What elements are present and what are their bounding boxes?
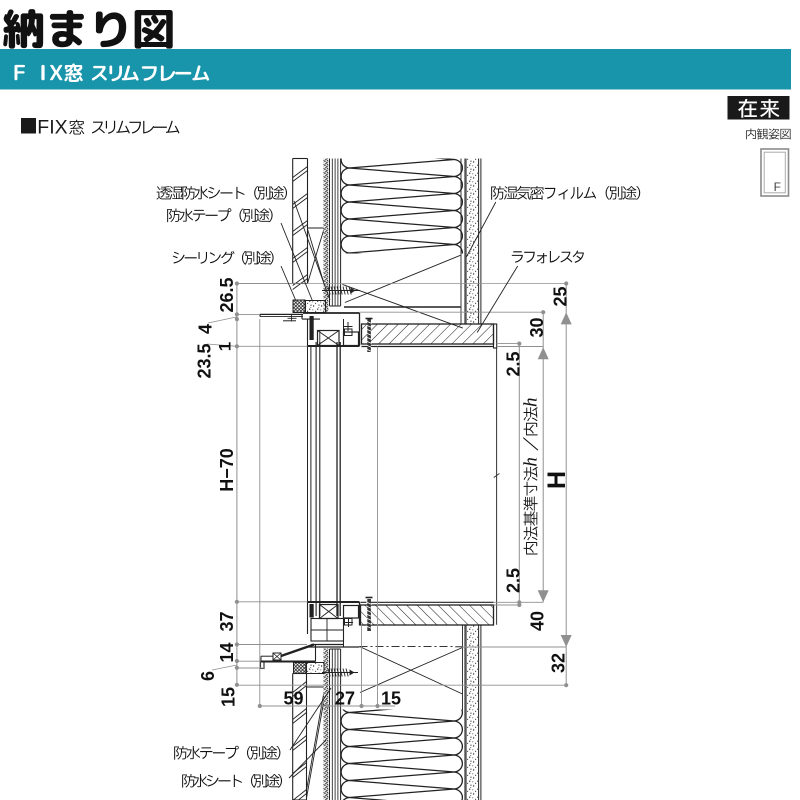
svg-text:30: 30 [527,317,547,337]
svg-text:6: 6 [198,671,218,681]
svg-text:1: 1 [216,342,235,351]
svg-text:26.5: 26.5 [217,277,237,312]
svg-text:40: 40 [528,611,548,631]
svg-text:15: 15 [219,687,239,707]
svg-text:25: 25 [551,286,571,306]
svg-text:h: h [521,457,542,467]
svg-text:h: h [521,398,542,408]
svg-text:H−70: H−70 [217,448,237,492]
svg-text:59: 59 [283,689,303,709]
svg-text:F: F [774,180,781,194]
svg-text:23.5: 23.5 [195,343,215,378]
svg-text:FIX: FIX [37,117,67,139]
svg-text:15: 15 [381,689,401,709]
svg-text:4: 4 [196,324,216,334]
svg-text:37: 37 [217,611,237,631]
svg-text:2.5: 2.5 [504,351,524,376]
svg-text:H: H [543,471,571,489]
svg-text:27: 27 [335,689,355,709]
svg-text:14: 14 [217,642,237,662]
svg-text:32: 32 [549,653,569,673]
svg-text:2.5: 2.5 [504,568,524,593]
